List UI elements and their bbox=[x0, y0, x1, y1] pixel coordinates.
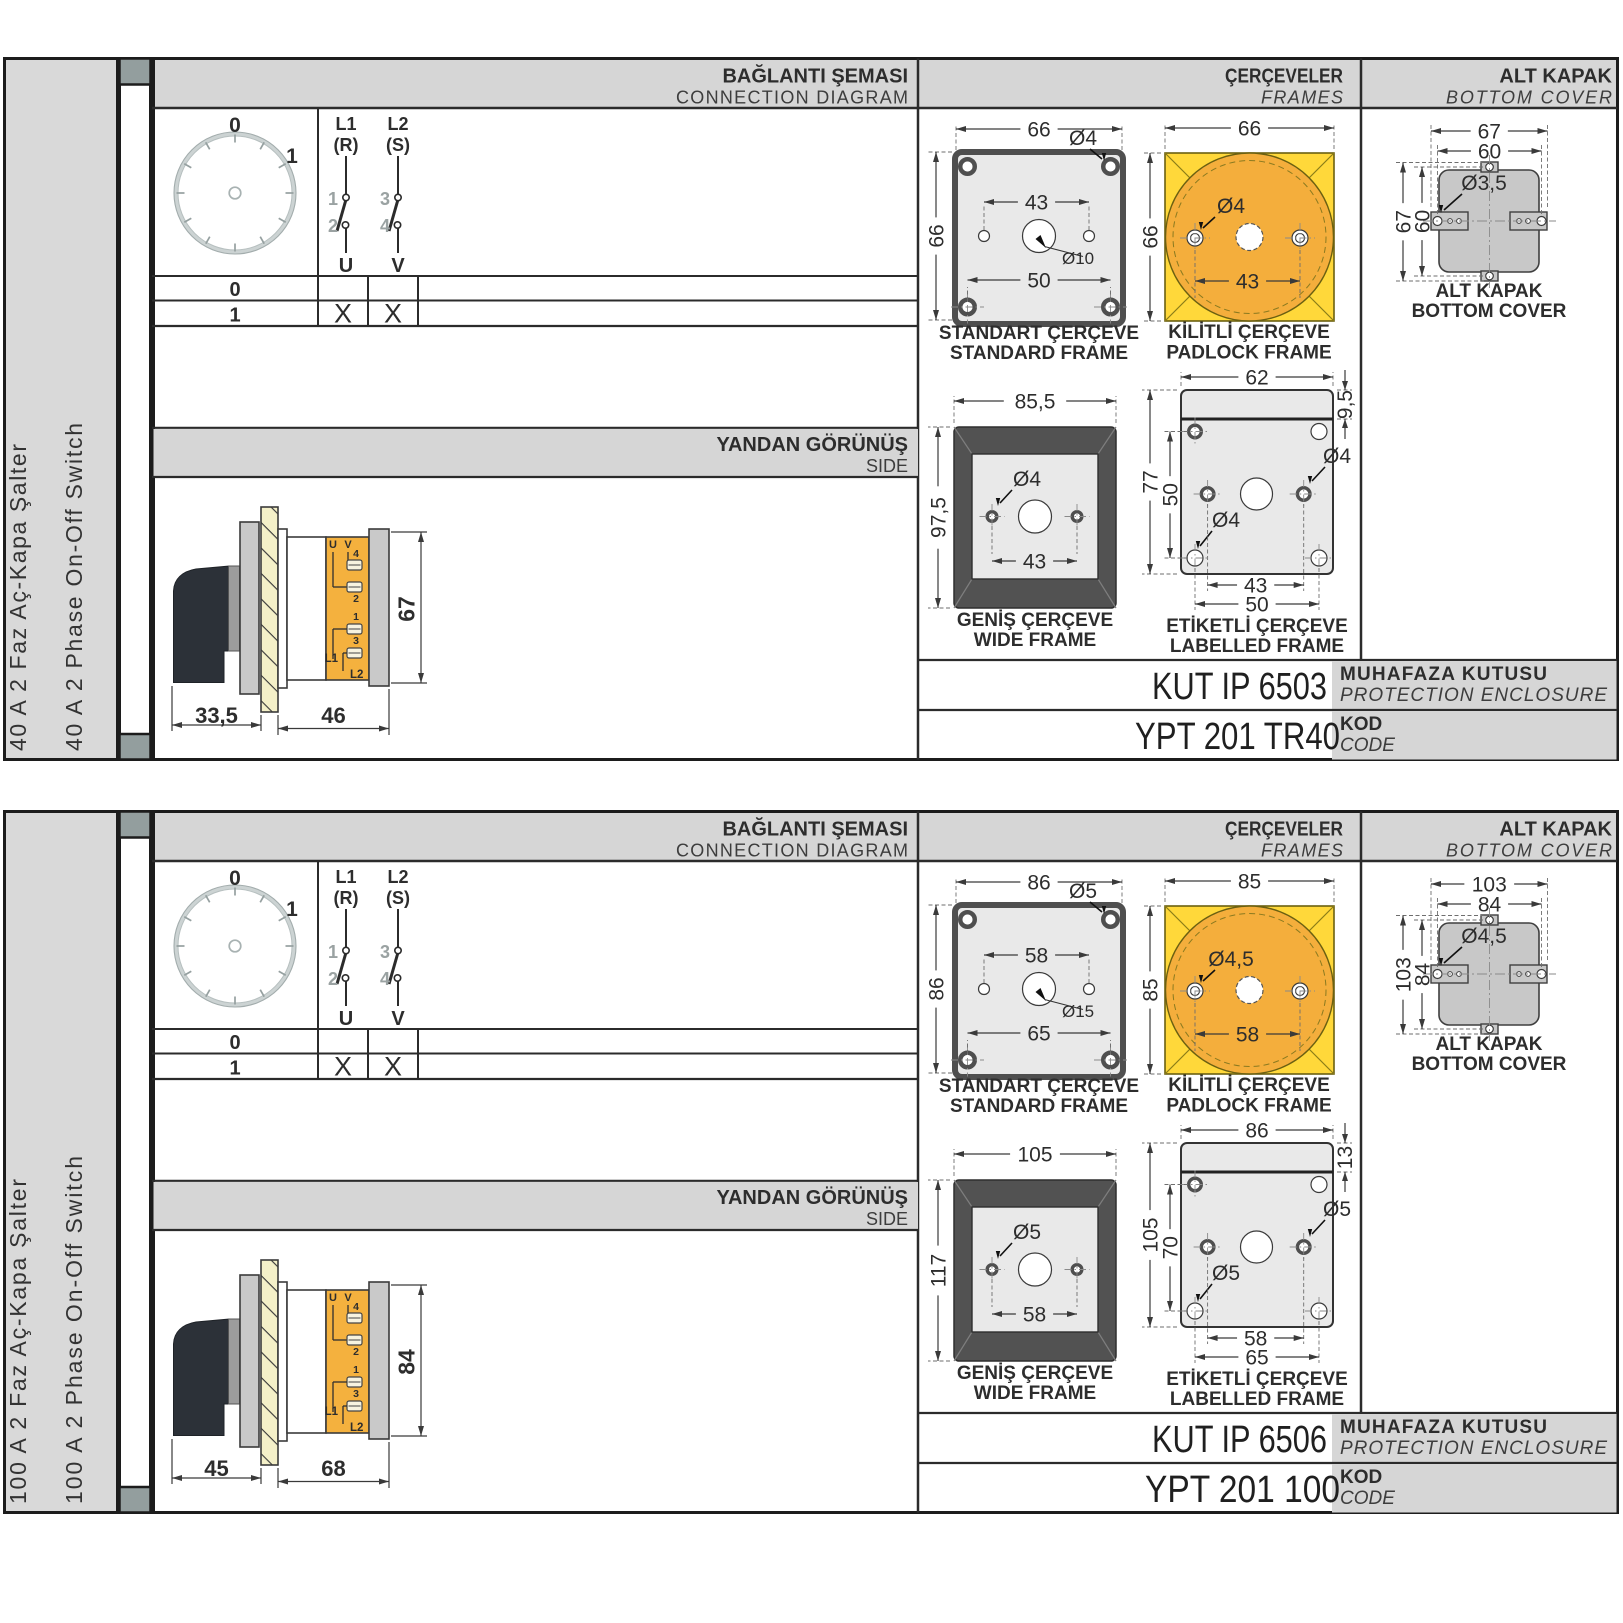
svg-text:LABELLED FRAME: LABELLED FRAME bbox=[1170, 1389, 1344, 1410]
svg-text:1: 1 bbox=[328, 189, 338, 209]
svg-text:4: 4 bbox=[380, 216, 390, 236]
svg-text:Ø4,5: Ø4,5 bbox=[1461, 925, 1507, 948]
svg-text:58: 58 bbox=[1236, 1024, 1259, 1047]
svg-text:FRAMES: FRAMES bbox=[1261, 88, 1343, 108]
svg-text:MUHAFAZA KUTUSU: MUHAFAZA KUTUSU bbox=[1340, 1417, 1547, 1438]
svg-text:70: 70 bbox=[1160, 1236, 1183, 1259]
svg-text:1: 1 bbox=[286, 898, 298, 921]
svg-text:(R): (R) bbox=[334, 135, 359, 155]
svg-text:86: 86 bbox=[1245, 1120, 1268, 1143]
svg-text:Ø4: Ø4 bbox=[1212, 509, 1240, 532]
svg-text:L1: L1 bbox=[335, 867, 356, 887]
svg-text:ÇERÇEVELER: ÇERÇEVELER bbox=[1225, 819, 1343, 841]
svg-text:BAĞLANTI ŞEMASI: BAĞLANTI ŞEMASI bbox=[722, 64, 908, 88]
svg-text:PADLOCK FRAME: PADLOCK FRAME bbox=[1166, 1096, 1331, 1117]
svg-text:ALT KAPAK: ALT KAPAK bbox=[1499, 66, 1612, 88]
svg-text:(S): (S) bbox=[386, 135, 410, 155]
svg-text:YANDAN GÖRÜNÜŞ: YANDAN GÖRÜNÜŞ bbox=[716, 433, 908, 456]
svg-text:Ø5: Ø5 bbox=[1013, 1221, 1041, 1244]
svg-text:CODE: CODE bbox=[1340, 1488, 1395, 1509]
svg-text:84: 84 bbox=[394, 1349, 420, 1375]
svg-text:U: U bbox=[329, 539, 337, 551]
svg-text:SIDE: SIDE bbox=[866, 1209, 908, 1229]
svg-text:Ø4: Ø4 bbox=[1013, 468, 1041, 491]
svg-text:(R): (R) bbox=[334, 888, 359, 908]
svg-text:2: 2 bbox=[353, 593, 359, 605]
svg-text:Ø4: Ø4 bbox=[1069, 127, 1097, 150]
svg-text:3: 3 bbox=[380, 942, 390, 962]
svg-text:3: 3 bbox=[353, 1388, 359, 1400]
svg-text:Ø4,5: Ø4,5 bbox=[1208, 948, 1254, 971]
svg-text:66: 66 bbox=[1140, 225, 1163, 248]
svg-text:ALT KAPAK: ALT KAPAK bbox=[1436, 281, 1543, 302]
svg-text:86: 86 bbox=[926, 977, 949, 1000]
svg-text:V: V bbox=[391, 1008, 405, 1030]
svg-text:2: 2 bbox=[353, 1346, 359, 1358]
svg-text:X: X bbox=[384, 1052, 402, 1082]
svg-text:BOTTOM COVER: BOTTOM COVER bbox=[1446, 841, 1612, 861]
svg-text:50: 50 bbox=[1027, 270, 1050, 293]
svg-text:STANDARD FRAME: STANDARD FRAME bbox=[950, 343, 1128, 364]
svg-text:1: 1 bbox=[353, 611, 359, 623]
svg-text:ÇERÇEVELER: ÇERÇEVELER bbox=[1225, 66, 1343, 88]
svg-text:L2: L2 bbox=[350, 669, 363, 681]
svg-text:66: 66 bbox=[926, 224, 949, 247]
svg-text:L1: L1 bbox=[335, 114, 356, 134]
svg-text:0: 0 bbox=[229, 279, 240, 301]
svg-text:43: 43 bbox=[1236, 271, 1259, 294]
svg-text:1: 1 bbox=[353, 1364, 359, 1376]
svg-text:L1: L1 bbox=[325, 1406, 339, 1418]
svg-text:43: 43 bbox=[1023, 551, 1046, 574]
svg-text:33,5: 33,5 bbox=[195, 703, 238, 728]
svg-text:U: U bbox=[339, 1008, 353, 1030]
svg-text:40 A 2 Phase On-Off Switch: 40 A 2 Phase On-Off Switch bbox=[61, 423, 87, 751]
svg-text:BAĞLANTI ŞEMASI: BAĞLANTI ŞEMASI bbox=[722, 817, 908, 841]
svg-text:STANDART ÇERÇEVE: STANDART ÇERÇEVE bbox=[939, 1076, 1139, 1097]
svg-text:ALT KAPAK: ALT KAPAK bbox=[1436, 1034, 1543, 1055]
svg-text:L2: L2 bbox=[350, 1422, 363, 1434]
svg-text:85: 85 bbox=[1238, 871, 1261, 894]
svg-text:50: 50 bbox=[1160, 483, 1183, 506]
svg-text:U: U bbox=[329, 1292, 337, 1304]
svg-text:BOTTOM COVER: BOTTOM COVER bbox=[1412, 301, 1567, 322]
svg-text:Ø5: Ø5 bbox=[1212, 1262, 1240, 1285]
svg-text:97,5: 97,5 bbox=[928, 497, 951, 538]
svg-text:STANDART ÇERÇEVE: STANDART ÇERÇEVE bbox=[939, 323, 1139, 344]
svg-text:ALT KAPAK: ALT KAPAK bbox=[1499, 819, 1612, 841]
svg-text:V: V bbox=[344, 1292, 352, 1304]
svg-text:2: 2 bbox=[328, 216, 338, 236]
svg-text:KİLİTLİ ÇERÇEVE: KİLİTLİ ÇERÇEVE bbox=[1168, 1075, 1330, 1096]
svg-text:85,5: 85,5 bbox=[1015, 391, 1056, 414]
svg-text:84: 84 bbox=[1412, 963, 1435, 987]
svg-text:9,5: 9,5 bbox=[1334, 390, 1357, 419]
svg-text:CONNECTION DIAGRAM: CONNECTION DIAGRAM bbox=[676, 88, 908, 108]
svg-text:68: 68 bbox=[321, 1456, 345, 1481]
svg-text:KİLİTLİ ÇERÇEVE: KİLİTLİ ÇERÇEVE bbox=[1168, 322, 1330, 343]
svg-text:Ø10: Ø10 bbox=[1062, 249, 1094, 268]
svg-text:X: X bbox=[334, 299, 352, 329]
svg-text:43: 43 bbox=[1025, 192, 1048, 215]
svg-text:WIDE FRAME: WIDE FRAME bbox=[974, 630, 1096, 651]
svg-text:YPT 201 TR40: YPT 201 TR40 bbox=[1135, 716, 1340, 758]
svg-text:YANDAN GÖRÜNÜŞ: YANDAN GÖRÜNÜŞ bbox=[716, 1186, 908, 1209]
svg-text:BOTTOM COVER: BOTTOM COVER bbox=[1446, 88, 1612, 108]
svg-text:1: 1 bbox=[328, 942, 338, 962]
svg-text:60: 60 bbox=[1478, 141, 1501, 164]
svg-text:85: 85 bbox=[1140, 978, 1163, 1001]
svg-text:GENİŞ ÇERÇEVE: GENİŞ ÇERÇEVE bbox=[957, 1363, 1113, 1384]
svg-text:L1: L1 bbox=[325, 653, 339, 665]
svg-text:67: 67 bbox=[394, 596, 420, 622]
svg-text:13: 13 bbox=[1334, 1146, 1357, 1169]
svg-text:KOD: KOD bbox=[1340, 1467, 1382, 1488]
svg-text:KUT IP 6506: KUT IP 6506 bbox=[1152, 1419, 1327, 1461]
svg-text:WIDE FRAME: WIDE FRAME bbox=[974, 1383, 1096, 1404]
svg-text:84: 84 bbox=[1478, 894, 1502, 917]
svg-text:4: 4 bbox=[353, 1301, 359, 1313]
svg-text:66: 66 bbox=[1238, 118, 1261, 141]
svg-text:0: 0 bbox=[229, 867, 241, 890]
svg-text:CONNECTION DIAGRAM: CONNECTION DIAGRAM bbox=[676, 841, 908, 861]
svg-text:X: X bbox=[334, 1052, 352, 1082]
svg-text:MUHAFAZA KUTUSU: MUHAFAZA KUTUSU bbox=[1340, 664, 1547, 685]
svg-text:Ø15: Ø15 bbox=[1062, 1002, 1094, 1021]
svg-text:65: 65 bbox=[1245, 1347, 1268, 1370]
svg-text:Ø5: Ø5 bbox=[1069, 880, 1097, 903]
svg-text:58: 58 bbox=[1025, 945, 1048, 968]
svg-text:86: 86 bbox=[1027, 872, 1050, 895]
svg-text:CODE: CODE bbox=[1340, 735, 1395, 756]
svg-text:3: 3 bbox=[353, 635, 359, 647]
svg-text:Ø4: Ø4 bbox=[1323, 445, 1351, 468]
svg-text:4: 4 bbox=[380, 969, 390, 989]
svg-text:SIDE: SIDE bbox=[866, 456, 908, 476]
svg-text:0: 0 bbox=[229, 1032, 240, 1054]
svg-text:60: 60 bbox=[1412, 210, 1435, 233]
svg-text:L2: L2 bbox=[387, 114, 408, 134]
svg-text:50: 50 bbox=[1245, 594, 1268, 617]
svg-text:46: 46 bbox=[321, 703, 345, 728]
svg-text:66: 66 bbox=[1027, 119, 1050, 142]
svg-text:65: 65 bbox=[1027, 1023, 1050, 1046]
svg-text:1: 1 bbox=[229, 1058, 240, 1080]
svg-text:58: 58 bbox=[1023, 1304, 1046, 1327]
svg-text:1: 1 bbox=[229, 305, 240, 327]
svg-text:62: 62 bbox=[1245, 367, 1268, 390]
svg-text:KOD: KOD bbox=[1340, 714, 1382, 735]
svg-text:117: 117 bbox=[928, 1254, 951, 1287]
svg-text:1: 1 bbox=[286, 145, 298, 168]
svg-text:KUT IP 6503: KUT IP 6503 bbox=[1152, 666, 1327, 708]
svg-text:4: 4 bbox=[353, 548, 359, 560]
svg-text:PROTECTION ENCLOSURE: PROTECTION ENCLOSURE bbox=[1340, 685, 1607, 706]
svg-text:45: 45 bbox=[204, 1456, 228, 1481]
svg-text:PADLOCK FRAME: PADLOCK FRAME bbox=[1166, 343, 1331, 364]
svg-text:V: V bbox=[391, 255, 405, 277]
svg-text:FRAMES: FRAMES bbox=[1261, 841, 1343, 861]
svg-text:GENİŞ ÇERÇEVE: GENİŞ ÇERÇEVE bbox=[957, 610, 1113, 631]
svg-text:V: V bbox=[344, 539, 352, 551]
svg-text:Ø5: Ø5 bbox=[1323, 1198, 1351, 1221]
svg-text:105: 105 bbox=[1017, 1144, 1052, 1167]
svg-text:X: X bbox=[384, 299, 402, 329]
svg-text:0: 0 bbox=[229, 114, 241, 137]
svg-text:STANDARD FRAME: STANDARD FRAME bbox=[950, 1096, 1128, 1117]
svg-text:ETİKETLİ ÇERÇEVE: ETİKETLİ ÇERÇEVE bbox=[1166, 1369, 1348, 1390]
svg-text:3: 3 bbox=[380, 189, 390, 209]
svg-text:Ø4: Ø4 bbox=[1217, 195, 1245, 218]
svg-text:(S): (S) bbox=[386, 888, 410, 908]
svg-text:YPT 201 100: YPT 201 100 bbox=[1145, 1469, 1340, 1511]
svg-text:40 A 2 Faz Aç-Kapa Şalter: 40 A 2 Faz Aç-Kapa Şalter bbox=[5, 444, 31, 751]
svg-text:U: U bbox=[339, 255, 353, 277]
svg-text:LABELLED FRAME: LABELLED FRAME bbox=[1170, 636, 1344, 657]
svg-text:ETİKETLİ ÇERÇEVE: ETİKETLİ ÇERÇEVE bbox=[1166, 616, 1348, 637]
svg-text:100 A 2 Phase On-Off Switch: 100 A 2 Phase On-Off Switch bbox=[61, 1156, 87, 1504]
svg-text:2: 2 bbox=[328, 969, 338, 989]
svg-text:L2: L2 bbox=[387, 867, 408, 887]
svg-text:BOTTOM COVER: BOTTOM COVER bbox=[1412, 1054, 1567, 1075]
svg-text:Ø3,5: Ø3,5 bbox=[1461, 172, 1507, 195]
svg-text:PROTECTION ENCLOSURE: PROTECTION ENCLOSURE bbox=[1340, 1438, 1607, 1459]
